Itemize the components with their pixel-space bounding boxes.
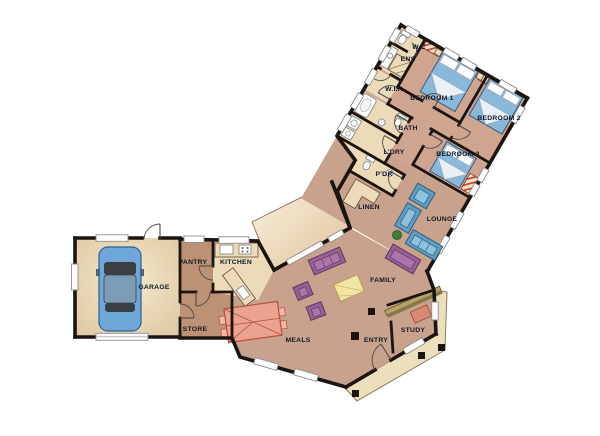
room-label-family: FAMILY: [370, 277, 396, 284]
door-arc: [144, 224, 160, 239]
room-label-study: STUDY: [401, 327, 426, 334]
veranda-post: [352, 390, 359, 397]
room-label-kitchen: KITCHEN: [220, 259, 252, 266]
burner: [241, 247, 243, 249]
room-label-pantry: PANTRY: [179, 259, 208, 266]
burner: [246, 250, 248, 252]
veranda-post: [438, 344, 445, 351]
room-label-ldry: L'DRY: [383, 149, 404, 156]
kitchen-sink: [220, 245, 233, 254]
veranda-post: [418, 352, 425, 359]
wall-entry-west: [391, 322, 393, 352]
room-label-bedroom3: BEDROOM 3: [436, 151, 479, 158]
window: [219, 237, 249, 244]
floor-plan-drawing: W.C ENS W.I.R BEDROOM 1 BEDROOM 2 BATH L…: [0, 0, 600, 436]
car-mirror-left: [96, 269, 100, 276]
car-mirror-right: [140, 269, 144, 276]
wall-post: [368, 308, 375, 315]
car-rear-window: [105, 303, 135, 312]
room-label-pdr: P'DR: [376, 171, 393, 178]
room-label-ens: ENS: [401, 56, 416, 63]
car-windshield: [104, 262, 136, 275]
room-label-bedroom1: BEDROOM 1: [410, 95, 453, 102]
room-label-wir: W.I.R: [385, 86, 403, 93]
window: [184, 236, 204, 243]
car: [96, 247, 144, 331]
stove: [239, 245, 251, 254]
window: [432, 302, 438, 320]
plant: [393, 231, 402, 240]
room-label-wc: W.C: [412, 44, 426, 51]
car-roof: [104, 275, 136, 303]
room-label-entry: ENTRY: [364, 337, 388, 344]
burner: [241, 250, 243, 252]
floor-plan-page: W.C ENS W.I.R BEDROOM 1 BEDROOM 2 BATH L…: [0, 0, 600, 436]
window: [96, 235, 128, 242]
room-label-garage: GARAGE: [138, 284, 170, 291]
room-label-linen: LINEN: [358, 204, 380, 211]
room-label-bath: BATH: [398, 125, 417, 132]
room-label-store: STORE: [183, 326, 208, 333]
wall-post: [351, 332, 359, 340]
burner: [246, 247, 248, 249]
window: [72, 264, 79, 290]
room-label-lounge: LOUNGE: [427, 216, 458, 223]
room-label-bedroom2: BEDROOM 2: [477, 115, 520, 122]
room-label-meals: MEALS: [285, 337, 310, 344]
